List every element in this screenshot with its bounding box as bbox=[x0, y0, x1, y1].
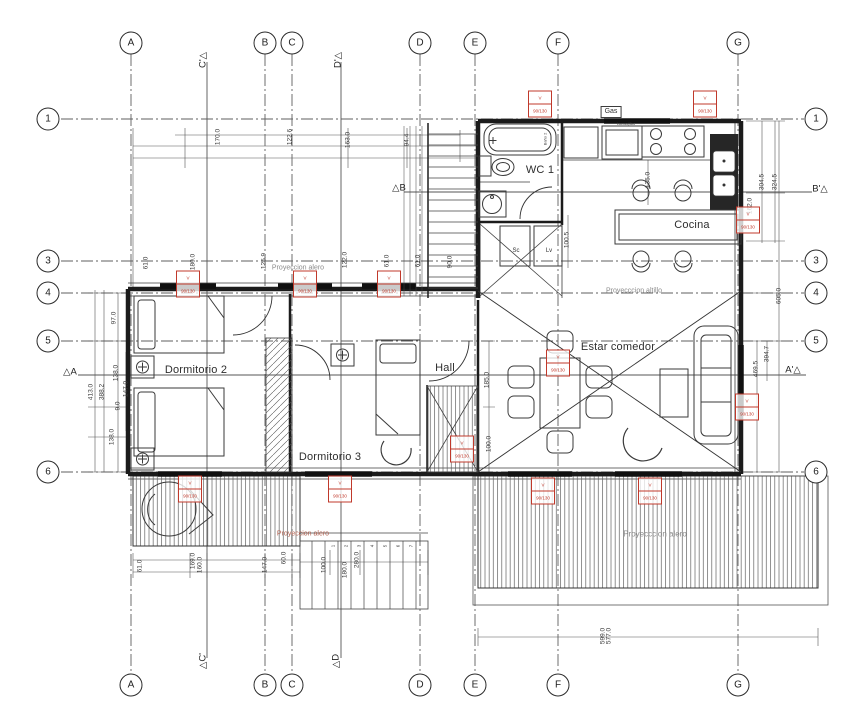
grid-bubble: 5 bbox=[805, 330, 828, 353]
window-tag-code: V bbox=[451, 437, 473, 450]
annotation-text: Lavavajillas bbox=[617, 122, 635, 126]
dimension-text: 324.5 bbox=[772, 174, 779, 190]
chair bbox=[508, 366, 534, 388]
annotation-text: Sc bbox=[512, 248, 519, 254]
dimension-text: 577.0 bbox=[606, 628, 613, 644]
grid-bubble: 4 bbox=[37, 282, 60, 305]
window-tag-size: 90/130 bbox=[179, 490, 201, 502]
grid-bubble: A bbox=[120, 32, 143, 55]
dimension-text: 61.0 bbox=[384, 255, 391, 268]
grid-bubble: E bbox=[464, 32, 487, 55]
window-tag-size: 90/130 bbox=[639, 492, 661, 504]
bed bbox=[376, 340, 420, 435]
section-marker: △B bbox=[392, 183, 406, 194]
grid-bubble: 5 bbox=[37, 330, 60, 353]
room-label: Estar comedor bbox=[581, 341, 655, 353]
window-tag-size: 90/130 bbox=[736, 408, 758, 420]
dimension-text: 100.0 bbox=[321, 557, 328, 573]
dimension-text: 163.0 bbox=[345, 132, 352, 148]
door-arc bbox=[233, 296, 272, 335]
plan-linework bbox=[0, 0, 858, 721]
dimension-text: 97.0 bbox=[111, 312, 118, 325]
dimension-text: 125.9 bbox=[261, 253, 268, 269]
closet bbox=[266, 338, 292, 472]
wc-sink bbox=[483, 195, 502, 214]
window-tag: V 90/130 bbox=[377, 271, 401, 298]
grid-bubble: B bbox=[254, 32, 277, 55]
dimension-text: 160.0 bbox=[197, 557, 204, 573]
grid-bubble: 3 bbox=[805, 250, 828, 273]
grid-bubble: G bbox=[727, 32, 750, 55]
dimension-text: 100.5 bbox=[564, 232, 571, 248]
grid-bubble: B bbox=[254, 674, 277, 697]
grid-bubble: 1 bbox=[805, 108, 828, 131]
room-label: Cocina bbox=[674, 219, 709, 231]
dimension-text: 394.7 bbox=[764, 346, 771, 362]
room-label: Dormitorio 3 bbox=[299, 451, 361, 463]
bed bbox=[134, 388, 224, 456]
window-tag-size: 90/130 bbox=[547, 364, 569, 376]
window-tag: V 90/130 bbox=[178, 476, 202, 503]
dimension-text: 60.0 bbox=[281, 552, 288, 565]
dimension-text: 4 bbox=[370, 545, 375, 548]
stool bbox=[675, 185, 691, 201]
grid-bubble: C bbox=[281, 674, 304, 697]
dimension-text: 605.0 bbox=[776, 288, 783, 304]
stool bbox=[633, 251, 649, 267]
grid-bubble: 6 bbox=[805, 461, 828, 484]
chair bbox=[547, 431, 573, 453]
window-tag-code: V bbox=[736, 395, 758, 408]
stool bbox=[675, 251, 691, 267]
window-tag-code: V bbox=[639, 479, 661, 492]
chair bbox=[586, 396, 612, 418]
window-tag: V 90/130 bbox=[328, 476, 352, 503]
section-marker: D'△ bbox=[333, 52, 344, 68]
dimension-text: 180.0 bbox=[342, 562, 349, 578]
window-tag: V 90/130 bbox=[693, 91, 717, 118]
section-marker: △D bbox=[331, 654, 342, 668]
window-tag-code: V bbox=[694, 92, 716, 105]
grid-bubble: C bbox=[281, 32, 304, 55]
dimension-text: 61.0 bbox=[137, 560, 144, 573]
grid-bubble: 3 bbox=[37, 250, 60, 273]
annotation-text: Proyeccion alero bbox=[277, 531, 329, 538]
dimension-text: 169.0 bbox=[190, 553, 197, 569]
section-marker: △A bbox=[63, 367, 77, 378]
dimension-text: 280.0 bbox=[354, 552, 361, 568]
window-tag-size: 90/130 bbox=[694, 105, 716, 117]
window-tag-code: V bbox=[737, 208, 759, 221]
window-tag-code: V bbox=[177, 272, 199, 285]
grid-bubble: E bbox=[464, 674, 487, 697]
double-height-cross bbox=[478, 291, 741, 472]
dimension-text: 388.2 bbox=[99, 384, 106, 400]
grid-bubble: D bbox=[409, 674, 432, 697]
room-label: Dormitorio 2 bbox=[165, 364, 227, 376]
chair bbox=[508, 396, 534, 418]
window-tag-size: 90/130 bbox=[532, 492, 554, 504]
dimension-text: 1 bbox=[331, 545, 336, 548]
dimension-text: 90.0 bbox=[447, 256, 454, 269]
section-marker: A'△ bbox=[785, 365, 800, 376]
grid-bubble: 6 bbox=[37, 461, 60, 484]
bed bbox=[134, 296, 224, 353]
dimension-text: 138.0 bbox=[113, 365, 120, 381]
section-marker: C'△ bbox=[198, 52, 209, 68]
dimension-text: 5 bbox=[383, 545, 388, 548]
coffee-table bbox=[660, 369, 688, 417]
section-marker: △C' bbox=[198, 653, 209, 669]
grid-bubble: 1 bbox=[37, 108, 60, 131]
dimension-text: 185.0 bbox=[484, 372, 491, 388]
dimension-text: 122.6 bbox=[287, 129, 294, 145]
dimension-text: 3 bbox=[357, 545, 362, 548]
window-tag-size: 90/130 bbox=[451, 450, 473, 462]
window-tag-code: V bbox=[294, 272, 316, 285]
annotation-text: Proyecccion alero bbox=[623, 530, 687, 539]
dimension-text: 61.0 bbox=[143, 257, 150, 270]
dimension-text: 7 bbox=[409, 545, 414, 548]
dimension-text: 61.0 bbox=[415, 255, 422, 268]
grid-bubble: D bbox=[409, 32, 432, 55]
window-tag-size: 90/130 bbox=[737, 221, 759, 233]
window-tag: V 90/130 bbox=[736, 207, 760, 234]
toilet-tank bbox=[479, 156, 491, 176]
floor-plan-sheet: ABCDEFGABCDEFG1345613456 WC 1CocinaEstar… bbox=[0, 0, 858, 721]
toilet bbox=[492, 159, 514, 176]
window-tag: V 90/130 bbox=[546, 350, 570, 377]
room-label: Hall bbox=[435, 362, 455, 374]
window-tag-code: V bbox=[532, 479, 554, 492]
deck-terrace bbox=[133, 476, 828, 605]
fridge bbox=[564, 127, 598, 158]
lounge-chair bbox=[623, 428, 662, 461]
grid-bubble: F bbox=[547, 32, 570, 55]
dimension-text: 147.0 bbox=[262, 557, 269, 573]
window-tag: V 90/130 bbox=[176, 271, 200, 298]
dimension-text: 304.5 bbox=[759, 174, 766, 190]
window-tag: V 90/130 bbox=[293, 271, 317, 298]
room-label: WC 1 bbox=[526, 164, 554, 176]
annotation-text: Lv bbox=[546, 248, 552, 254]
dimension-text: 9.0 bbox=[115, 401, 122, 410]
window-tag: V 90/130 bbox=[450, 436, 474, 463]
dimension-text: 2 bbox=[344, 545, 349, 548]
dimension-text: 100.0 bbox=[486, 436, 493, 452]
window-tag-code: V bbox=[329, 477, 351, 490]
window-tag-code: V bbox=[378, 272, 400, 285]
dimension-text: 170.0 bbox=[215, 129, 222, 145]
window-tag-size: 90/130 bbox=[329, 490, 351, 502]
chair bbox=[381, 441, 411, 465]
window-tag: V 90/130 bbox=[528, 91, 552, 118]
window-tag-size: 90/130 bbox=[378, 285, 400, 297]
grid-bubble: G bbox=[727, 674, 750, 697]
annotation-text: Proyecccion altillo bbox=[606, 288, 662, 295]
window-tag-code: V bbox=[529, 92, 551, 105]
window-tag: V 90/130 bbox=[735, 394, 759, 421]
dimension-text: 147.0 bbox=[123, 381, 130, 397]
dimension-text: 122.0 bbox=[342, 252, 349, 268]
grid-bubble: A bbox=[120, 674, 143, 697]
window-tag-size: 90/130 bbox=[294, 285, 316, 297]
dishwasher bbox=[602, 126, 642, 159]
dimension-text: 6 bbox=[396, 545, 401, 548]
dimension-text: 469.5 bbox=[753, 361, 760, 377]
dimension-text: 138.0 bbox=[109, 429, 116, 445]
annotation-text: Baño 2 bbox=[543, 133, 548, 146]
window-tag: V 90/130 bbox=[638, 478, 662, 505]
window-tag-code: V bbox=[179, 477, 201, 490]
dimension-text: 94.4 bbox=[404, 134, 411, 147]
dimension-text: 180.0 bbox=[190, 254, 197, 270]
section-marker: B'△ bbox=[812, 184, 827, 195]
dimension-text: 413.0 bbox=[88, 384, 95, 400]
chair bbox=[586, 366, 612, 388]
window-tag: V 90/130 bbox=[531, 478, 555, 505]
window-tag-code: V bbox=[547, 351, 569, 364]
annotation-text: Gas bbox=[601, 106, 622, 118]
grid-bubble: 4 bbox=[805, 282, 828, 305]
window-tag-size: 90/130 bbox=[177, 285, 199, 297]
dimension-text: 135.0 bbox=[645, 172, 652, 188]
window-tag-size: 90/130 bbox=[529, 105, 551, 117]
grid-bubble: F bbox=[547, 674, 570, 697]
